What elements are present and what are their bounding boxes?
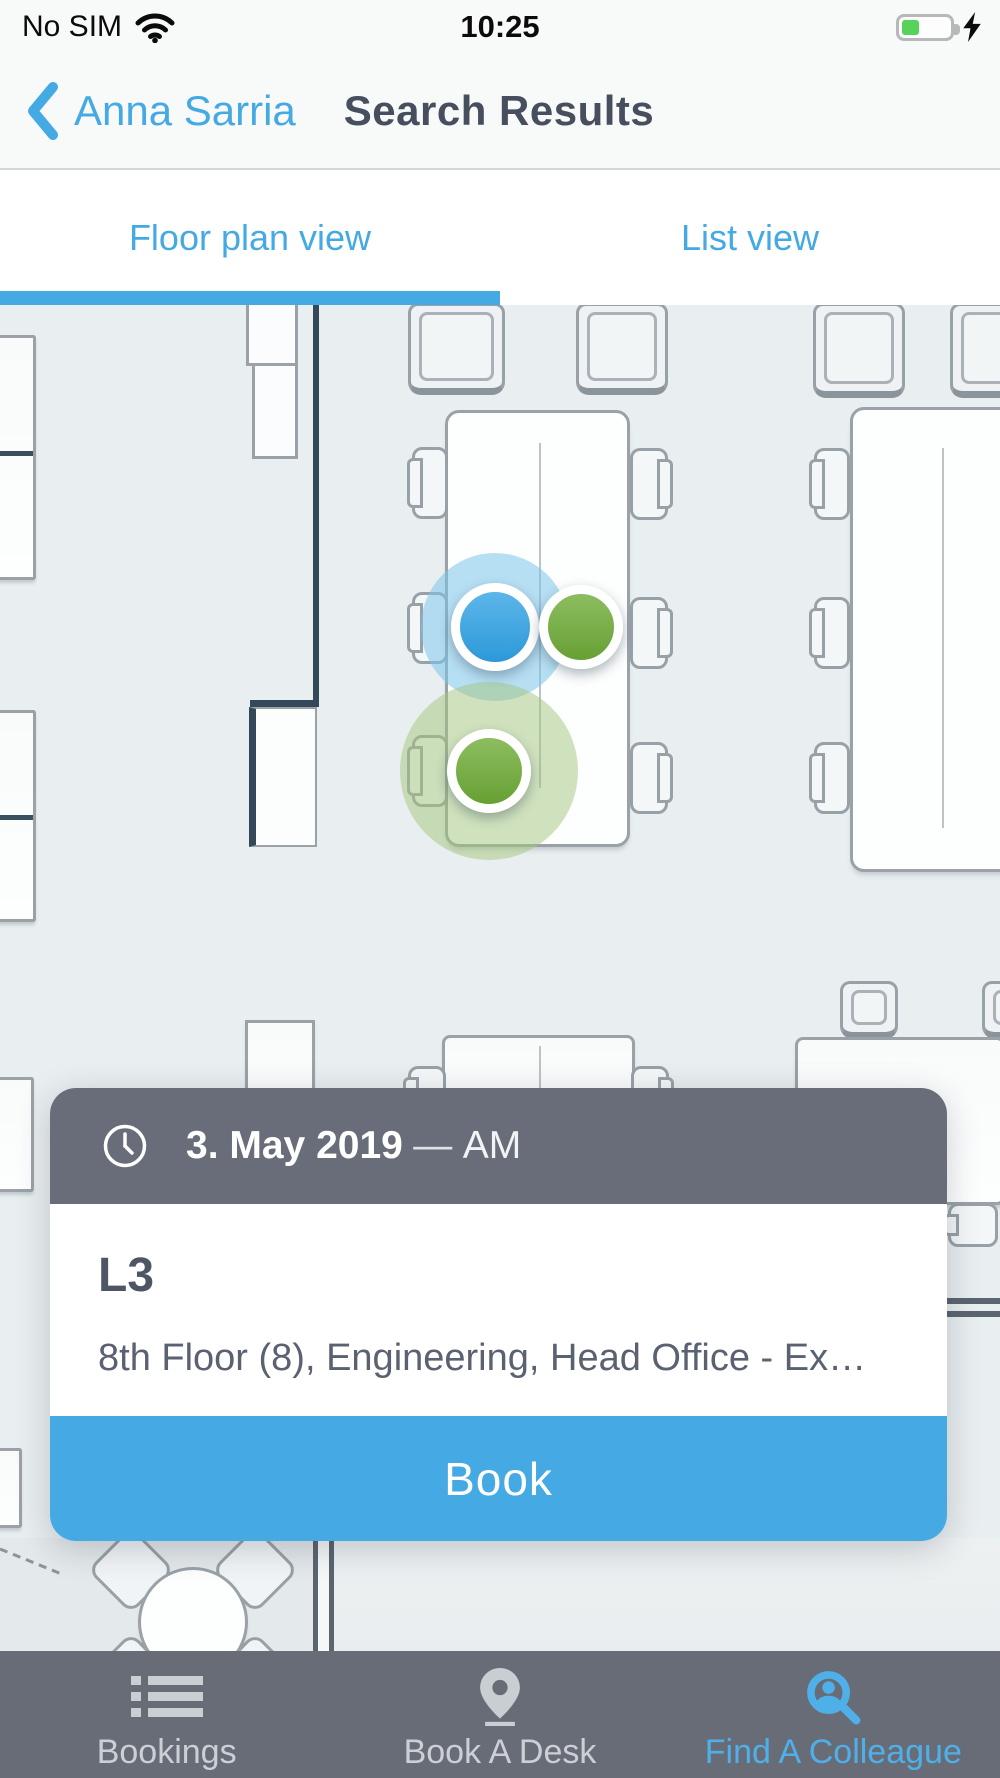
page-title: Search Results bbox=[344, 87, 654, 135]
tabbar-item-find-a-colleague[interactable]: Find A Colleague bbox=[667, 1651, 1000, 1778]
colleague-marker-colleague[interactable] bbox=[447, 729, 531, 813]
clock-icon bbox=[102, 1123, 148, 1169]
booking-card: 3. May 2019 — AM L3 8th Floor (8), Engin… bbox=[50, 1088, 947, 1541]
tabbar-label: Book A Desk bbox=[404, 1733, 597, 1772]
tab-floor-plan-view[interactable]: Floor plan view bbox=[0, 170, 500, 305]
status-bar: No SIM 10:25 bbox=[0, 0, 1000, 54]
app-screen: No SIM 10:25 bbox=[0, 0, 1000, 1778]
list-icon bbox=[131, 1669, 203, 1725]
booking-date: 3. May 2019 bbox=[186, 1124, 403, 1167]
status-right bbox=[896, 0, 982, 54]
colleague-marker-colleague[interactable] bbox=[539, 585, 623, 669]
colleague-marker-selected-colleague[interactable] bbox=[451, 583, 539, 671]
view-tabs: Floor plan view List view bbox=[0, 168, 1000, 305]
active-tab-indicator bbox=[0, 291, 500, 305]
tabbar-label: Bookings bbox=[97, 1733, 237, 1772]
battery-icon bbox=[896, 14, 954, 41]
tabbar-item-bookings[interactable]: Bookings bbox=[0, 1651, 333, 1778]
tabbar-item-book-a-desk[interactable]: Book A Desk bbox=[333, 1651, 666, 1778]
nav-bar: Anna Sarria Search Results bbox=[0, 54, 1000, 168]
charging-bolt-icon bbox=[962, 12, 982, 42]
booking-datetime: 3. May 2019 — AM bbox=[186, 1124, 521, 1168]
bottom-tab-bar: Bookings Book A Desk Find A bbox=[0, 1651, 1000, 1778]
back-label: Anna Sarria bbox=[74, 87, 296, 135]
find-colleague-icon bbox=[804, 1669, 862, 1725]
date-period-separator: — bbox=[413, 1124, 452, 1167]
desk-location: 8th Floor (8), Engineering, Head Office … bbox=[98, 1337, 899, 1380]
book-button[interactable]: Book bbox=[50, 1416, 947, 1541]
booking-card-body: L3 8th Floor (8), Engineering, Head Offi… bbox=[50, 1204, 947, 1416]
clock-time: 10:25 bbox=[0, 9, 1000, 45]
tab-list-view[interactable]: List view bbox=[500, 170, 1000, 305]
back-chevron-icon bbox=[24, 82, 60, 140]
desk-name: L3 bbox=[98, 1248, 899, 1303]
booking-period: AM bbox=[463, 1124, 522, 1167]
tabbar-label: Find A Colleague bbox=[705, 1733, 962, 1772]
back-button[interactable]: Anna Sarria bbox=[24, 82, 296, 140]
booking-card-header: 3. May 2019 — AM bbox=[50, 1088, 947, 1204]
map-pin-icon bbox=[480, 1669, 520, 1725]
